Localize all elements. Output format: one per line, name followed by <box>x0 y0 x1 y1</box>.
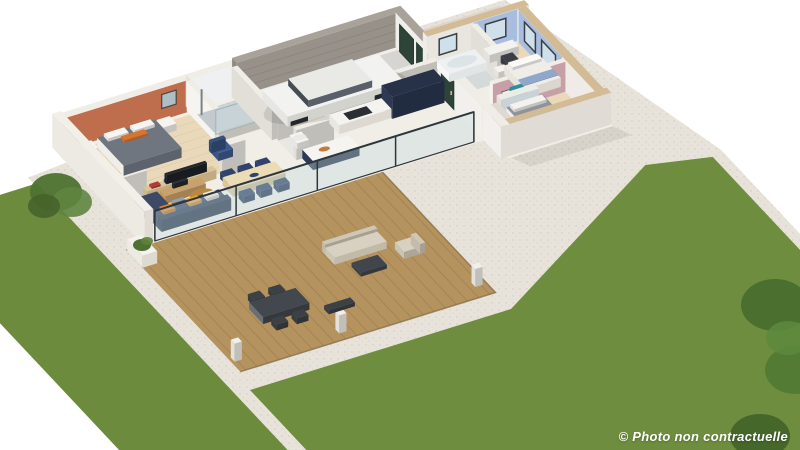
wing-west-wall <box>501 124 510 159</box>
floorplan-3d-scene <box>0 0 800 450</box>
floorplan-render: © Photo non contractuelle <box>0 0 800 450</box>
bush-left-3 <box>28 194 60 218</box>
watermark-text: © Photo non contractuelle <box>619 429 788 444</box>
deck-post-1 <box>235 342 242 362</box>
planter-plant-light <box>141 237 153 245</box>
lounge-chair-back <box>420 243 425 255</box>
deck-post-3 <box>475 267 482 287</box>
deck-post-2 <box>339 313 346 333</box>
